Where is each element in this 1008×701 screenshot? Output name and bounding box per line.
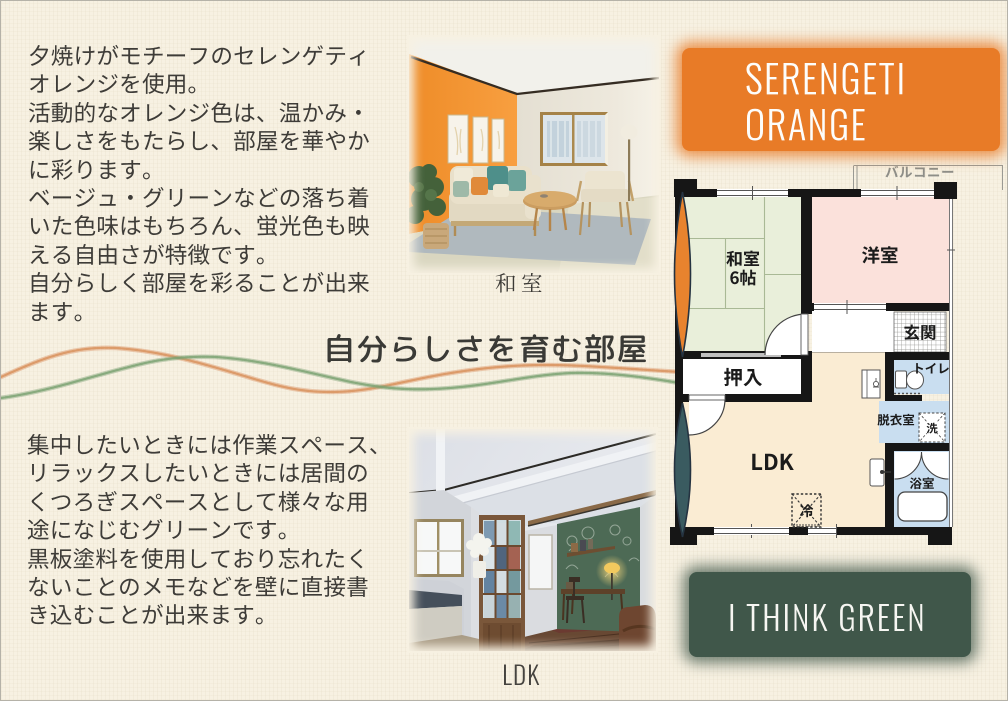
svg-text:バルコニー: バルコニー (885, 161, 955, 181)
svg-text:脱衣室: 脱衣室 (877, 410, 915, 429)
svg-text:6帖: 6帖 (729, 264, 756, 289)
svg-text:玄関: 玄関 (904, 320, 937, 344)
svg-text:トイレ: トイレ (912, 358, 950, 377)
svg-text:洗: 洗 (926, 421, 938, 437)
svg-text:LDK: LDK (750, 445, 794, 477)
svg-text:押入: 押入 (723, 362, 762, 391)
svg-text:洋室: 洋室 (861, 242, 898, 268)
svg-text:浴室: 浴室 (909, 473, 934, 492)
svg-text:冷: 冷 (800, 501, 814, 521)
